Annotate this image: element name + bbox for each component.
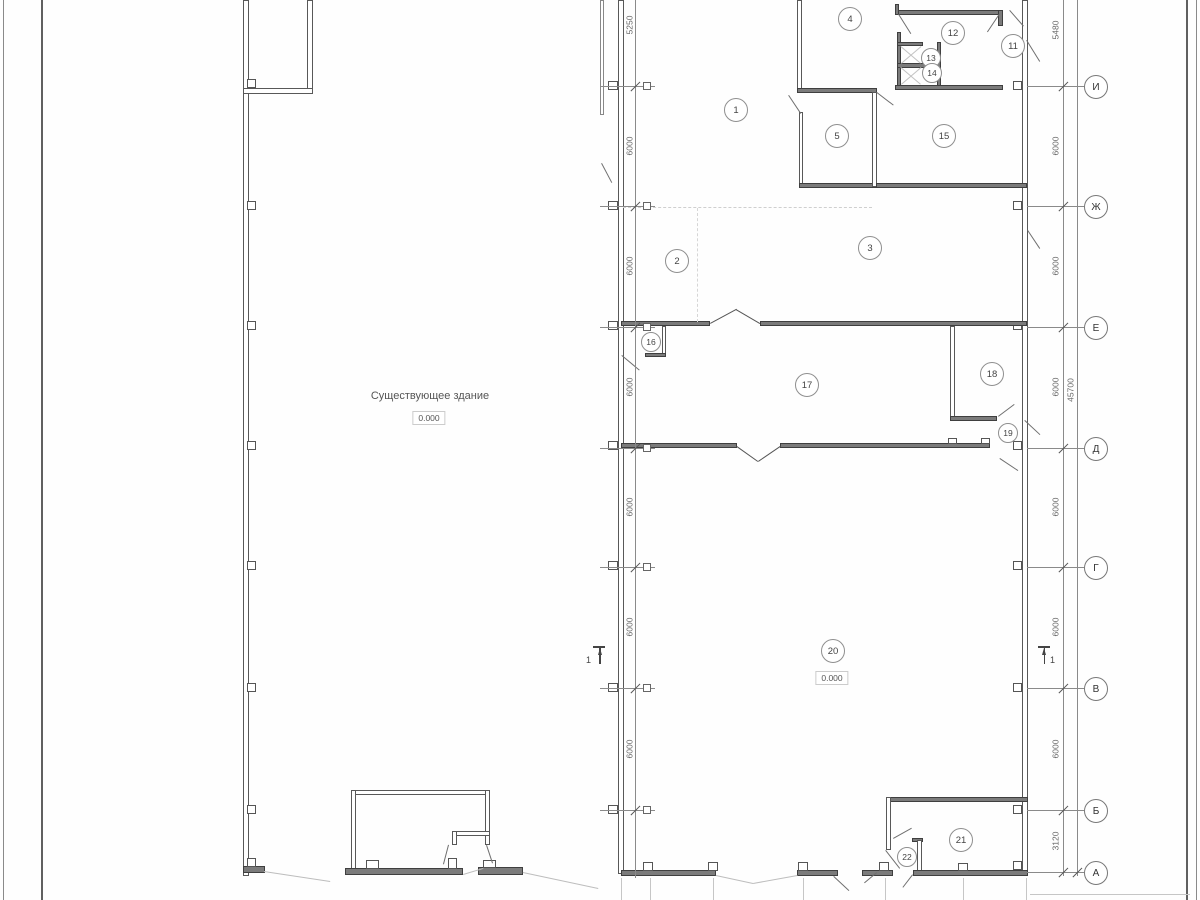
column-marker: [247, 858, 256, 867]
wall-segment: [950, 326, 955, 421]
wall-segment: [600, 0, 604, 115]
door-leaf: [902, 874, 913, 888]
dimension-label: 3120: [1051, 818, 1062, 864]
column-marker: [247, 561, 256, 570]
dimension-label: 6000: [625, 726, 636, 772]
column-base: [366, 860, 379, 869]
axis-grid-line: [1027, 567, 1084, 568]
column-base: [708, 862, 718, 871]
wall-segment: [243, 866, 265, 873]
wall-segment: [452, 831, 457, 845]
wall-segment: [345, 868, 463, 875]
grid-marker: [643, 563, 651, 571]
grid-marker: [643, 444, 651, 452]
sheet-border: [3, 0, 4, 900]
room-tag: 5: [825, 124, 849, 148]
room-tag: 14: [922, 63, 942, 83]
level-mark: 0.000: [412, 411, 445, 425]
opening-break: [736, 446, 758, 462]
door-leaf: [893, 828, 912, 839]
axis-grid-line: [1027, 688, 1084, 689]
wall-segment: [797, 0, 802, 92]
column-marker: [1013, 441, 1022, 450]
existing-building-label: Существующее здание: [371, 390, 489, 402]
room-tag: 12: [941, 21, 965, 45]
dimension-label: 6000: [625, 364, 636, 410]
dashed-line: [697, 208, 698, 322]
door-leaf: [1026, 40, 1040, 62]
column-base: [948, 438, 957, 444]
dashed-line: [623, 207, 872, 208]
grid-marker: [643, 806, 651, 814]
dimension-label: 6000: [1051, 726, 1062, 772]
room-tag: 20: [821, 639, 845, 663]
wall-segment: [799, 112, 803, 187]
axis-bubble: Ж: [1084, 195, 1108, 219]
wall-segment: [886, 797, 1028, 802]
sheet-border: [1196, 0, 1197, 900]
wall-segment: [917, 840, 922, 874]
room-tag: 16: [641, 332, 661, 352]
column-base: [448, 858, 457, 869]
wall-segment: [876, 183, 1027, 188]
column-base: [483, 860, 496, 868]
axis-bubble: Д: [1084, 437, 1108, 461]
dimension-label: 5250: [625, 2, 636, 48]
axis-bubble: А: [1084, 861, 1108, 885]
door-leaf: [898, 14, 911, 34]
grid-line-stub: [1026, 878, 1027, 900]
column-marker: [1013, 861, 1022, 870]
grid-marker: [643, 82, 651, 90]
column-marker: [1013, 201, 1022, 210]
room-tag: 15: [932, 124, 956, 148]
axis-bubble: Б: [1084, 799, 1108, 823]
wall-segment: [351, 790, 356, 870]
dimension-label: 6000: [1051, 364, 1062, 410]
column-marker: [608, 321, 618, 330]
grid-line-stub: [963, 878, 964, 900]
wall-segment: [760, 321, 1027, 326]
wall-segment: [799, 183, 877, 188]
room-tag: 2: [665, 249, 689, 273]
column-marker: [247, 201, 256, 210]
break-line: [523, 872, 598, 889]
column-marker: [247, 441, 256, 450]
wall-segment: [351, 790, 490, 795]
break-line: [753, 875, 797, 884]
wall-segment: [645, 353, 666, 357]
dimension-label: 6000: [1051, 123, 1062, 169]
wall-segment: [913, 870, 1028, 876]
column-marker: [1013, 81, 1022, 90]
dimension-label: 6000: [625, 243, 636, 289]
wall-segment: [1022, 0, 1028, 875]
grid-line-stub: [885, 878, 886, 900]
room-tag: 19: [998, 423, 1018, 443]
door-leaf: [1027, 230, 1040, 249]
wall-segment: [898, 10, 1002, 15]
grid-marker: [643, 323, 651, 331]
wall-segment: [243, 0, 249, 876]
column-marker: [1013, 805, 1022, 814]
wall-segment: [478, 867, 523, 875]
room-tag: 11: [1001, 34, 1025, 58]
column-marker: [608, 561, 618, 570]
column-base: [879, 862, 889, 871]
axis-grid-line: [1027, 86, 1084, 87]
column-marker: [247, 805, 256, 814]
room-tag: 3: [858, 236, 882, 260]
room-tag: 1: [724, 98, 748, 122]
wall-segment: [780, 443, 990, 448]
door-leaf: [601, 163, 612, 183]
wall-segment: [307, 0, 313, 93]
section-mark-label: 1: [1050, 655, 1055, 665]
axis-grid-line: [1027, 327, 1084, 328]
opening-break: [710, 309, 737, 324]
column-marker: [247, 683, 256, 692]
wall-segment: [895, 85, 1003, 90]
door-leaf: [788, 95, 801, 114]
floor-plan-canvas: Существующее здание 0.000: [0, 0, 1200, 900]
axis-bubble: Г: [1084, 556, 1108, 580]
column-marker: [247, 321, 256, 330]
sheet-border: [1186, 0, 1188, 900]
dimension-label: 5480: [1051, 7, 1062, 53]
axis-bubble: И: [1084, 75, 1108, 99]
room-tag: 21: [949, 828, 973, 852]
grid-marker: [643, 684, 651, 692]
grid-line-stub: [650, 878, 651, 900]
dimension-label: 6000: [1051, 484, 1062, 530]
wall-segment: [243, 88, 313, 94]
wall-segment: [886, 797, 891, 850]
section-mark-arrow: [1042, 648, 1046, 655]
sheet-border: [41, 0, 43, 900]
axis-bubble: Е: [1084, 316, 1108, 340]
dimension-line: [1063, 0, 1064, 876]
column-marker: [1013, 561, 1022, 570]
wall-segment: [950, 416, 997, 421]
wall-segment: [618, 0, 624, 874]
door-leaf: [998, 404, 1015, 417]
room-tag: 22: [897, 847, 917, 867]
dimension-label-overall: 45700: [1066, 367, 1077, 413]
wall-segment: [897, 32, 901, 89]
wall-segment: [797, 88, 877, 93]
grid-marker: [643, 202, 651, 210]
column-base: [643, 862, 653, 871]
wall-segment: [485, 790, 490, 845]
wall-segment: [872, 92, 877, 187]
dimension-line: [1077, 0, 1078, 876]
wall-segment: [452, 831, 490, 836]
column-marker: [1013, 683, 1022, 692]
level-mark: 0.000: [815, 671, 848, 685]
room-tag: 4: [838, 7, 862, 31]
door-leaf: [876, 92, 894, 106]
column-base: [981, 438, 990, 444]
section-mark-label: 1: [586, 655, 591, 665]
dimension-label: 6000: [1051, 243, 1062, 289]
column-marker: [608, 441, 618, 450]
dimension-label: 6000: [625, 484, 636, 530]
door-leaf: [833, 876, 849, 891]
opening-break: [735, 309, 760, 324]
grid-line-stub: [803, 878, 804, 900]
dimension-label: 6000: [625, 604, 636, 650]
column-base: [958, 863, 968, 871]
room-tag: 18: [980, 362, 1004, 386]
column-base: [798, 862, 808, 871]
section-mark-arrow: [598, 648, 602, 655]
axis-grid-line: [1027, 448, 1084, 449]
break-line: [264, 871, 330, 882]
door-leaf: [999, 458, 1018, 471]
grid-line-stub: [621, 878, 622, 900]
axis-grid-line: [1027, 810, 1084, 811]
grid-line-stub: [1030, 894, 1190, 895]
column-marker: [247, 79, 256, 88]
grid-line-stub: [713, 878, 714, 900]
axis-grid-line: [1027, 206, 1084, 207]
room-tag: 17: [795, 373, 819, 397]
break-line: [716, 875, 753, 884]
opening-break: [758, 446, 781, 462]
axis-bubble: В: [1084, 677, 1108, 701]
dimension-label: 6000: [625, 123, 636, 169]
dimension-label: 6000: [1051, 604, 1062, 650]
